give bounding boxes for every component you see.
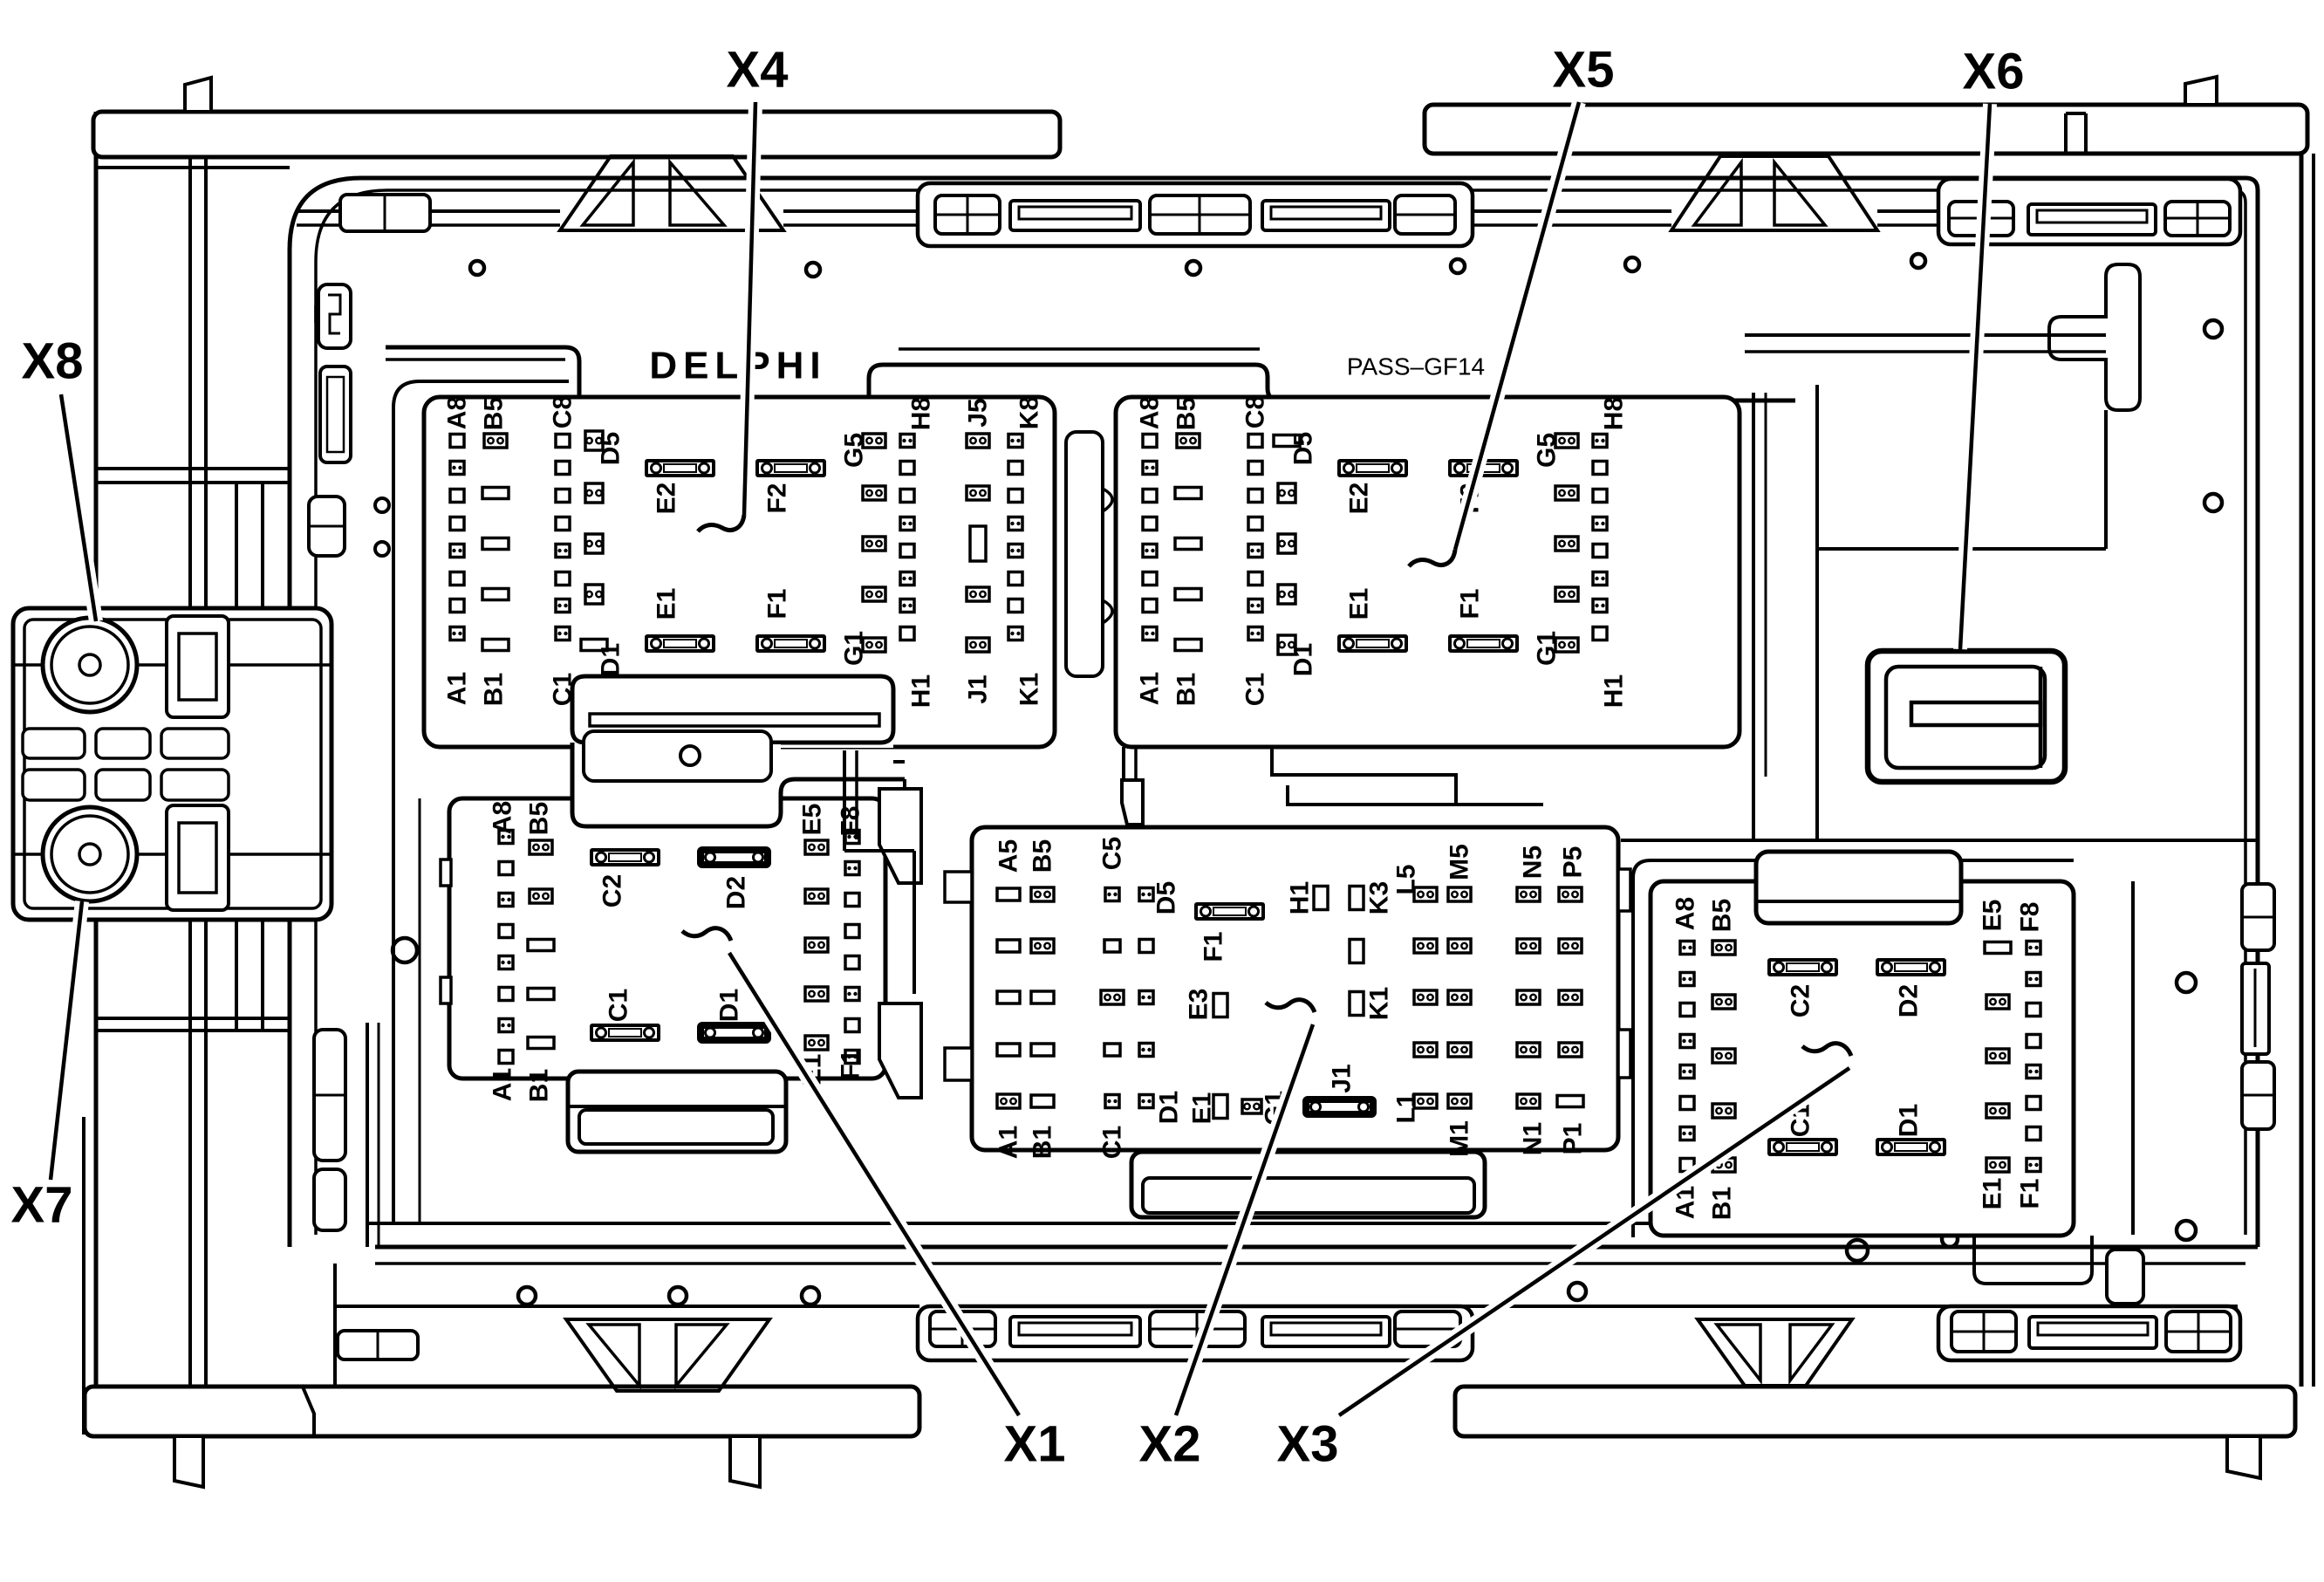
svg-text:C8: C8 (549, 395, 578, 428)
svg-text:C2: C2 (598, 874, 627, 907)
svg-text:N1: N1 (1519, 1122, 1548, 1155)
svg-text:M1: M1 (1446, 1120, 1474, 1157)
svg-text:B1: B1 (1029, 1126, 1057, 1159)
svg-text:K1: K1 (1365, 987, 1394, 1020)
svg-text:A8: A8 (443, 396, 472, 429)
svg-text:X5: X5 (1553, 42, 1615, 99)
svg-text:X2: X2 (1139, 1416, 1201, 1473)
svg-text:M5: M5 (1446, 844, 1474, 880)
svg-text:A8: A8 (1136, 396, 1165, 429)
svg-text:C5: C5 (1098, 837, 1127, 870)
svg-text:PASS–GF14: PASS–GF14 (1347, 353, 1485, 380)
svg-text:K8: K8 (1015, 396, 1044, 429)
svg-text:B5: B5 (525, 802, 554, 835)
svg-text:A1: A1 (995, 1126, 1023, 1159)
svg-text:C1: C1 (1241, 673, 1270, 706)
svg-text:X8: X8 (22, 333, 84, 390)
svg-text:D1: D1 (1155, 1091, 1184, 1124)
svg-text:D2: D2 (722, 876, 751, 909)
svg-text:F8: F8 (2016, 901, 2045, 932)
svg-text:B5: B5 (1029, 839, 1057, 873)
svg-text:N5: N5 (1519, 846, 1548, 879)
svg-text:H1: H1 (907, 675, 936, 708)
svg-text:X7: X7 (11, 1177, 73, 1234)
svg-text:E3: E3 (1185, 989, 1213, 1021)
svg-text:P5: P5 (1559, 846, 1588, 879)
svg-text:G1: G1 (840, 631, 869, 666)
svg-text:H1: H1 (1286, 881, 1315, 914)
svg-text:E1: E1 (653, 588, 681, 620)
svg-text:D1: D1 (1895, 1104, 1924, 1137)
svg-text:B1: B1 (525, 1069, 554, 1102)
svg-text:B1: B1 (1172, 673, 1201, 706)
svg-text:J1: J1 (1328, 1064, 1357, 1092)
svg-text:F1: F1 (837, 1049, 865, 1079)
svg-text:X4: X4 (727, 42, 789, 99)
svg-text:G5: G5 (840, 433, 869, 468)
svg-text:B5: B5 (1708, 899, 1737, 932)
svg-text:F1: F1 (1200, 931, 1228, 962)
svg-text:L5: L5 (1392, 864, 1421, 894)
svg-text:C1: C1 (1098, 1126, 1127, 1159)
svg-text:D2: D2 (1895, 984, 1924, 1017)
svg-text:D1: D1 (597, 643, 625, 676)
svg-text:F2: F2 (763, 483, 792, 513)
svg-text:X1: X1 (1004, 1416, 1066, 1473)
svg-text:K1: K1 (1015, 673, 1044, 706)
svg-text:K3: K3 (1365, 881, 1394, 914)
svg-text:H8: H8 (907, 397, 936, 430)
svg-text:D1: D1 (715, 989, 744, 1022)
svg-text:G5: G5 (1533, 433, 1562, 468)
svg-text:B1: B1 (480, 673, 509, 706)
svg-text:E5: E5 (798, 804, 827, 836)
svg-text:B5: B5 (480, 397, 509, 430)
svg-text:F8: F8 (837, 805, 865, 836)
svg-text:D5: D5 (597, 432, 625, 465)
svg-text:E2: E2 (653, 483, 681, 515)
svg-text:P1: P1 (1559, 1123, 1588, 1155)
svg-text:A1: A1 (1136, 672, 1165, 705)
svg-text:X3: X3 (1277, 1416, 1339, 1473)
svg-text:E2: E2 (1345, 483, 1374, 515)
svg-text:D1: D1 (1289, 643, 1318, 676)
svg-text:DELPHI: DELPHI (649, 345, 826, 387)
svg-text:F1: F1 (2016, 1178, 2045, 1209)
svg-text:X6: X6 (1963, 44, 2025, 100)
svg-text:D5: D5 (1152, 881, 1181, 914)
svg-text:G1: G1 (1533, 631, 1562, 666)
svg-text:D5: D5 (1289, 432, 1318, 465)
svg-text:L1: L1 (1392, 1092, 1421, 1123)
svg-text:B1: B1 (1708, 1187, 1737, 1220)
svg-text:A1: A1 (443, 672, 472, 705)
svg-text:A8: A8 (1671, 897, 1700, 930)
svg-text:A1: A1 (489, 1068, 517, 1101)
svg-text:E1: E1 (1979, 1178, 2007, 1210)
svg-text:B5: B5 (1172, 397, 1201, 430)
svg-text:A8: A8 (489, 801, 517, 834)
svg-text:E1: E1 (1345, 588, 1374, 620)
svg-text:C1: C1 (605, 989, 633, 1022)
svg-text:J1: J1 (964, 675, 993, 703)
svg-text:C8: C8 (1241, 395, 1270, 428)
svg-text:A5: A5 (995, 839, 1023, 873)
svg-text:E5: E5 (1979, 900, 2007, 932)
svg-text:E1: E1 (1188, 1092, 1217, 1125)
svg-text:H1: H1 (1600, 675, 1629, 708)
svg-text:F1: F1 (763, 588, 792, 619)
svg-text:C2: C2 (1787, 984, 1815, 1017)
svg-text:F1: F1 (1456, 588, 1485, 619)
svg-text:J5: J5 (964, 398, 993, 427)
svg-text:H8: H8 (1600, 397, 1629, 430)
